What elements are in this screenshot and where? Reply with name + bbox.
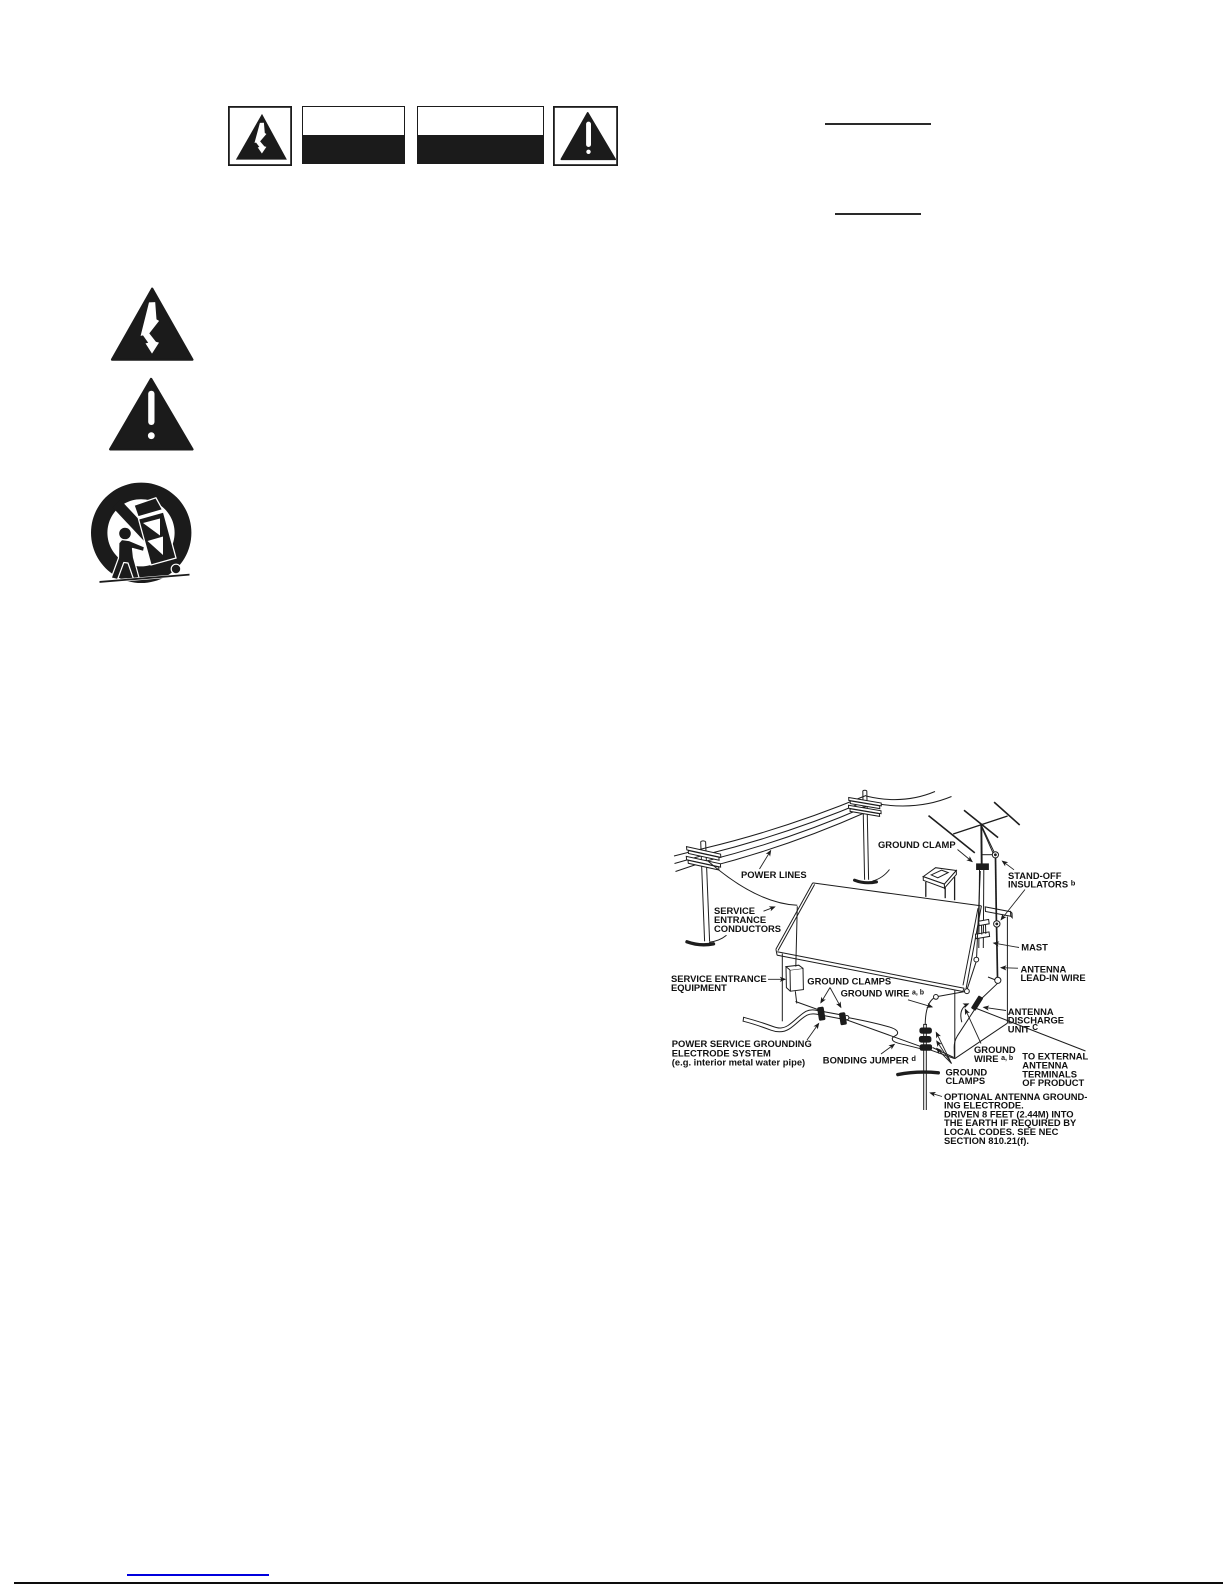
svg-text:SECTION 810.21(f).: SECTION 810.21(f). [944,1135,1029,1146]
svg-text:WIRE a, b: WIRE a, b [974,1053,1013,1064]
svg-text:UNIT C: UNIT C [1008,1023,1038,1035]
svg-text:POWER LINES: POWER LINES [741,869,807,880]
svg-text:GROUND CLAMP: GROUND CLAMP [878,839,956,850]
svg-text:BONDING JUMPER d: BONDING JUMPER d [823,1054,917,1065]
svg-text:GROUND WIRE a, b: GROUND WIRE a, b [841,988,924,999]
svg-text:LEAD-IN WIRE: LEAD-IN WIRE [1021,972,1086,983]
svg-text:CONDUCTORS: CONDUCTORS [714,923,781,934]
svg-text:EQUIPMENT: EQUIPMENT [671,982,727,993]
svg-text:CLAMPS: CLAMPS [946,1075,986,1086]
svg-text:MAST: MAST [1021,941,1048,952]
svg-text:(e.g. interior metal water pip: (e.g. interior metal water pipe) [672,1057,805,1068]
svg-text:INSULATORS b: INSULATORS b [1008,879,1076,890]
svg-text:OF PRODUCT: OF PRODUCT [1022,1077,1084,1088]
svg-text:GROUND CLAMPS: GROUND CLAMPS [807,975,891,986]
